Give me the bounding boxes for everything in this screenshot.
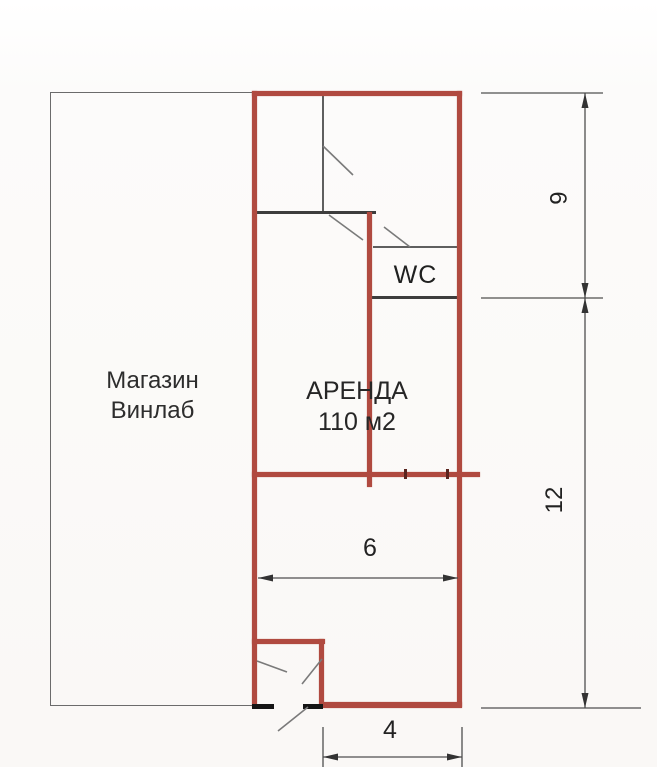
rental-label-line1: АРЕНДА	[252, 376, 462, 407]
arrow-right-entrance	[447, 754, 462, 761]
door-swing-vestibule-left	[257, 661, 287, 672]
dimension-lower-height: 12	[535, 484, 575, 516]
dimension-entrance-width: 4	[370, 716, 410, 745]
arrow-right-room-width	[443, 575, 458, 582]
arrow-down-bottom	[582, 693, 589, 708]
floor-plan: Магазин Винлаб АРЕНДА 110 м2 WC 6 12 6 4	[0, 0, 657, 767]
entrance-jamb-left	[252, 704, 274, 709]
wc-label: WC	[369, 261, 462, 290]
entrance-jamb-right	[303, 704, 323, 709]
wall-wc-top	[373, 246, 462, 248]
dimension-room-width: 6	[350, 534, 390, 563]
divider-tick-1	[404, 469, 407, 479]
door-swing-wc	[384, 227, 410, 247]
red-wall-vestibule-top	[252, 639, 325, 644]
store-label-line1: Магазин	[50, 366, 255, 396]
divider-tick-2	[446, 469, 449, 479]
red-wall-bottom	[321, 702, 462, 708]
store-label-line2: Винлаб	[50, 396, 255, 426]
arrow-left-room-width	[258, 575, 273, 582]
rental-label: АРЕНДА 110 м2	[252, 376, 462, 438]
door-swing-middle-left	[329, 215, 363, 240]
arrow-left-entrance	[323, 754, 338, 761]
arrow-down-middle	[582, 283, 589, 298]
rental-label-line2: 110 м2	[252, 407, 462, 438]
store-label: Магазин Винлаб	[50, 366, 255, 426]
arrow-up-top	[582, 93, 589, 108]
red-wall-vestibule-right	[319, 639, 324, 707]
door-swing-entrance	[278, 707, 308, 731]
wall-wc-bottom	[369, 296, 462, 299]
arrow-up-middle	[582, 298, 589, 313]
wall-top-room-divider	[322, 93, 324, 213]
red-wall-top	[252, 91, 462, 96]
door-swing-top-room	[323, 146, 353, 175]
wall-horizontal-upper	[255, 211, 376, 214]
red-wall-middle-vertical	[367, 212, 372, 487]
dimension-upper-height: 6	[541, 182, 573, 214]
